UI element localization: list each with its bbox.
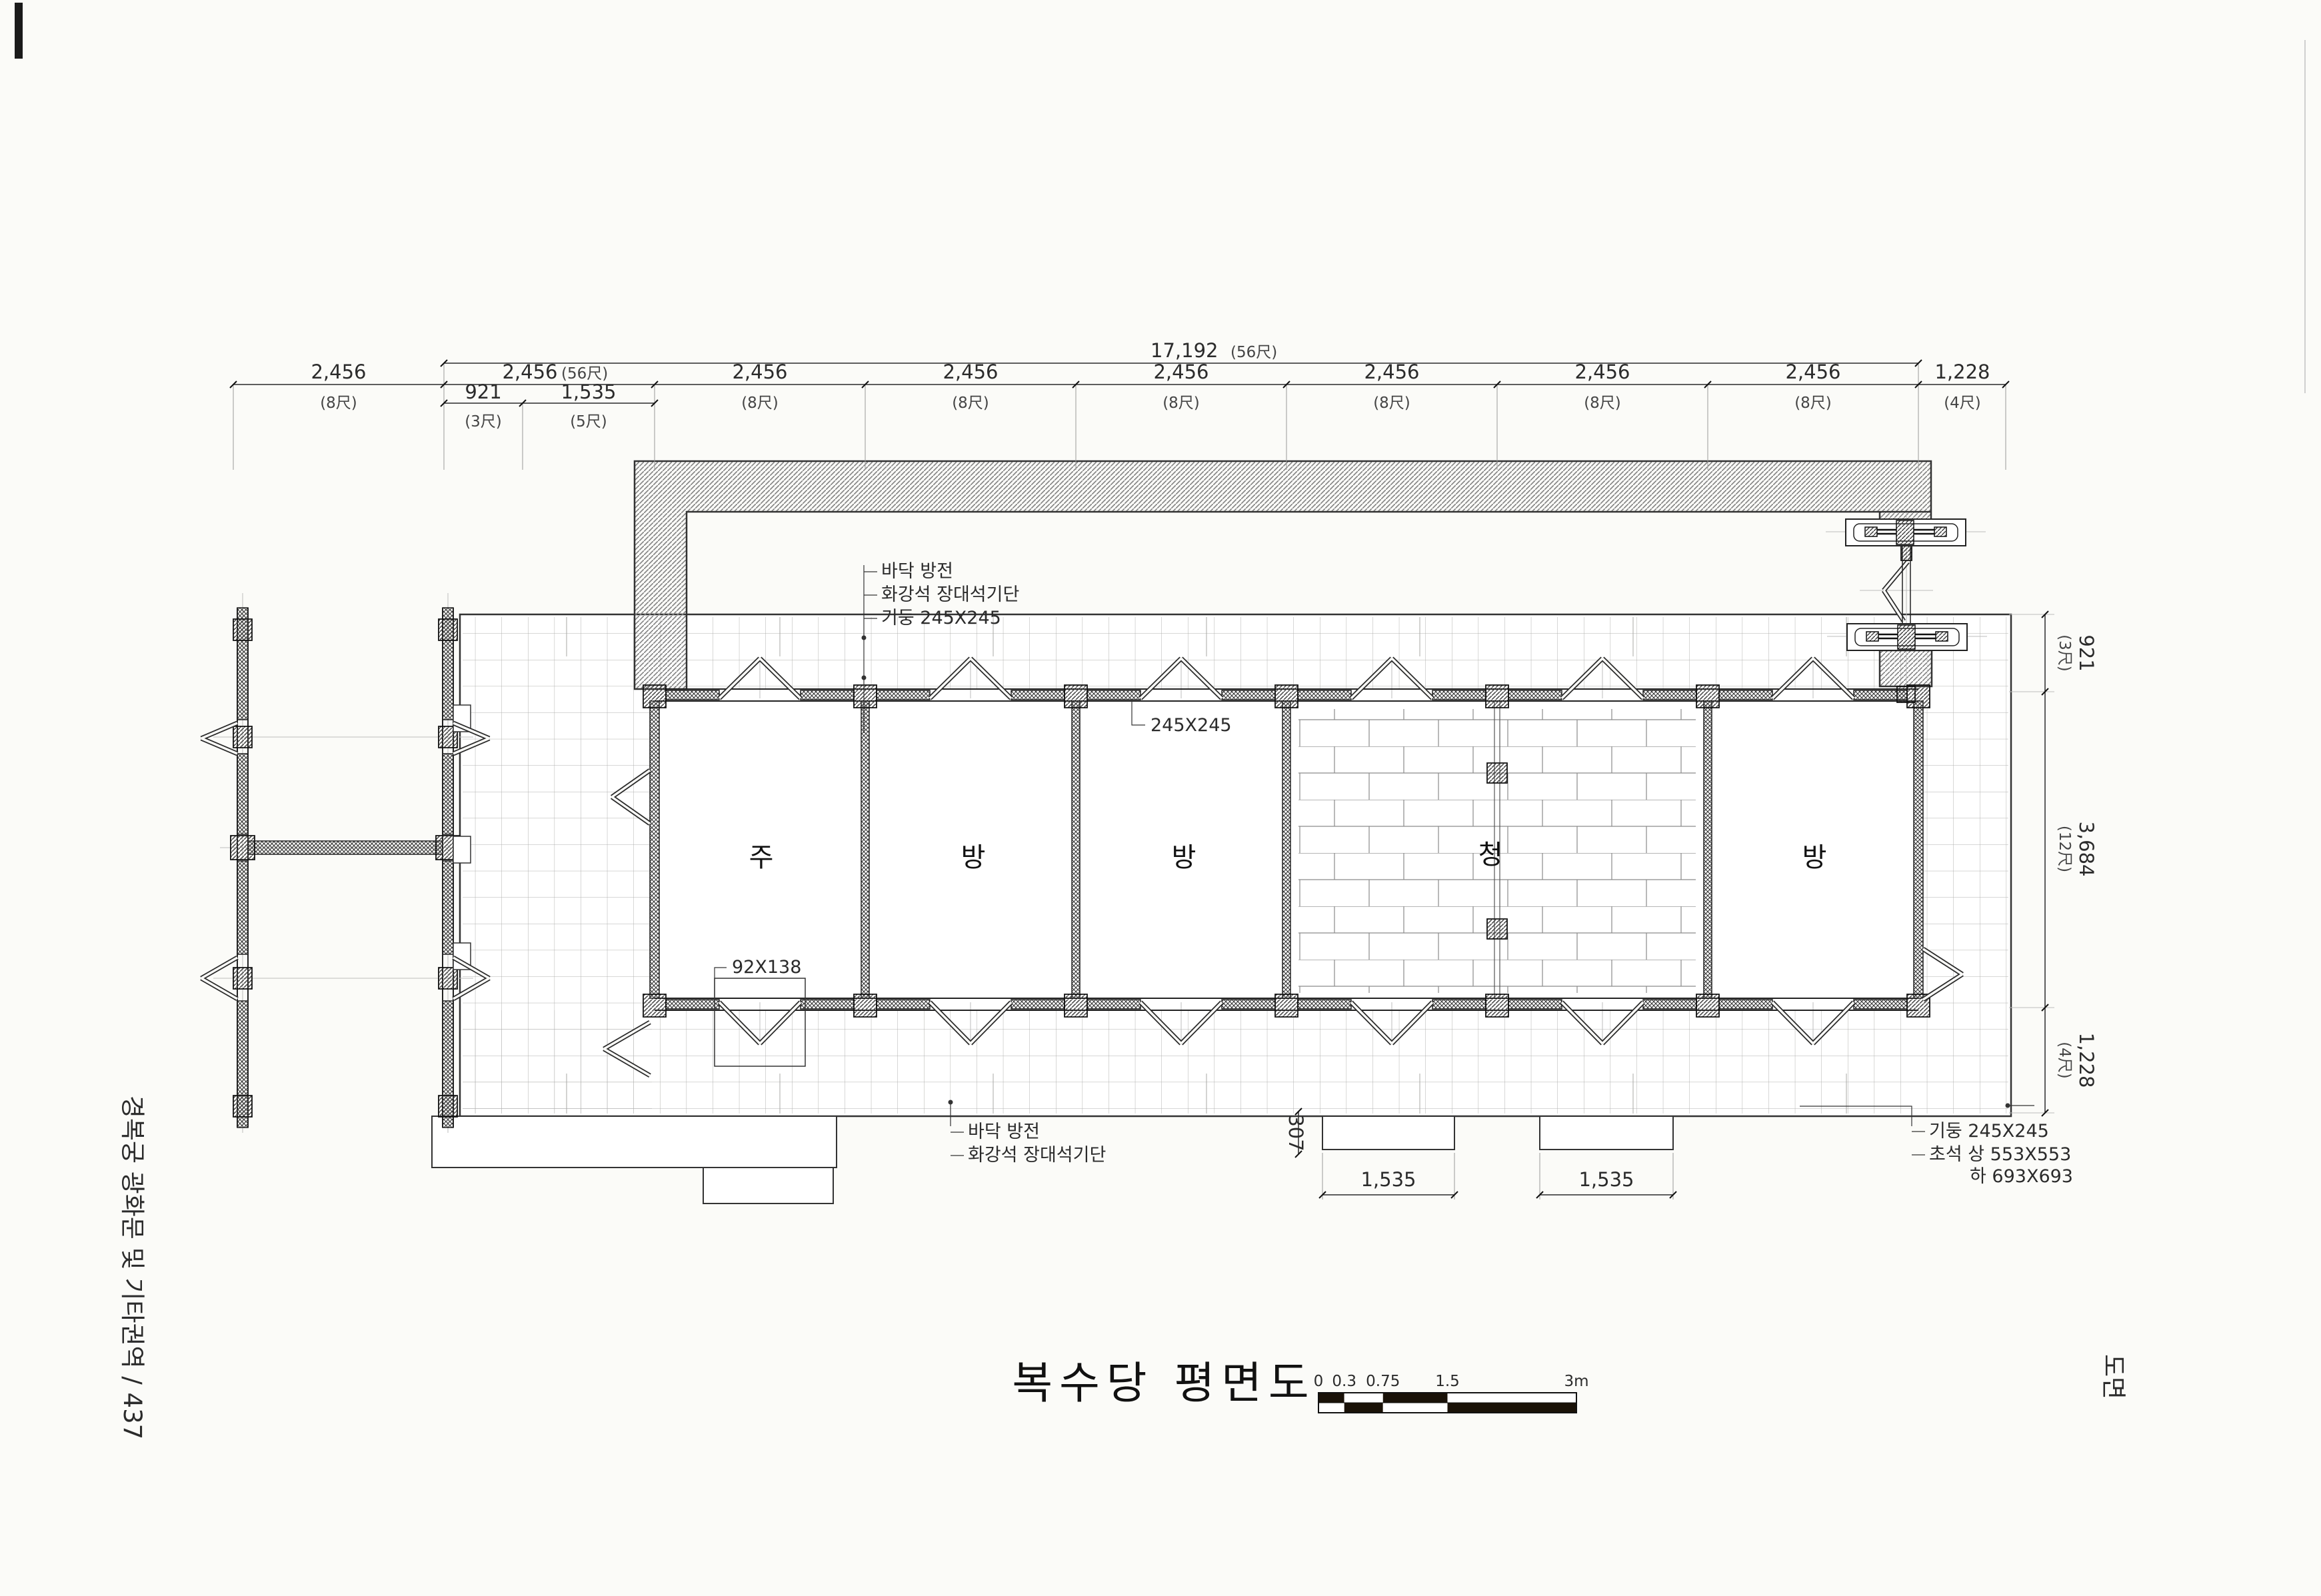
dim-bay-unit: (8尺)	[952, 395, 989, 412]
dim-sub-unit: (3尺)	[465, 413, 502, 430]
leader-dot	[862, 636, 867, 640]
annotation-top-line: 기둥 245X245	[881, 608, 1001, 628]
dim-bay-value: 2,456	[311, 361, 366, 383]
scale-label: 3m	[1564, 1373, 1588, 1390]
dim-bay-unit: (8尺)	[1162, 395, 1200, 412]
step-stone	[1322, 1116, 1454, 1150]
scale-label: 0.3	[1332, 1373, 1356, 1390]
dim-right-value: 3,684	[2075, 821, 2098, 876]
step-stone	[1540, 1116, 1673, 1150]
annotation-column-size: 245X245	[1151, 715, 1232, 736]
step-stone-left	[703, 1168, 833, 1203]
annotation-bottom-right-line: 하 693X693	[1970, 1166, 2073, 1187]
room-label: 방	[1802, 842, 1827, 873]
dim-sub-value: 1,535	[561, 381, 616, 403]
floor-plan-sheet: 17,192 (56尺) 2,456 (8尺) 2,456 (56尺) 2,45…	[0, 0, 2321, 1596]
room-label: 방	[961, 842, 986, 873]
scale-label: 0	[1314, 1373, 1324, 1390]
dim-right-unit: (12尺)	[2056, 826, 2073, 872]
dim-right-value: 921	[2075, 634, 2098, 671]
sheet-caption-right: 도면	[2099, 1354, 2128, 1399]
dim-bay-unit: (8尺)	[320, 395, 357, 412]
dim-bay-unit: (8尺)	[741, 395, 779, 412]
scan-artifact	[15, 3, 23, 59]
dim-bay-value: 2,456	[502, 361, 557, 383]
dim-bay-unit: (8尺)	[1584, 395, 1621, 412]
scale-label: 0.75	[1366, 1373, 1400, 1390]
dim-step-width: 1,535	[1360, 1168, 1416, 1191]
dim-bay-value: 2,456	[1364, 361, 1419, 383]
dim-bay-value: 2,456	[1785, 361, 1840, 383]
dim-bay-value: 2,456	[732, 361, 787, 383]
annotation-top-line: 바닥 방전	[881, 561, 953, 582]
door-frame	[453, 836, 471, 863]
room-label: 방	[1172, 842, 1196, 873]
scale-label: 1.5	[1435, 1373, 1460, 1390]
dim-bay-value: 2,456	[943, 361, 998, 383]
dim-bay-unit: (8尺)	[1373, 395, 1410, 412]
dim-right-unit: (4尺)	[2056, 1042, 2073, 1079]
annotation-bottom-right-line: 초석 상 553X553	[1929, 1144, 2071, 1165]
dim-sub-unit: (5尺)	[570, 413, 607, 430]
dim-right-unit: (3尺)	[2056, 634, 2073, 672]
platform-lower-apron	[432, 1116, 837, 1168]
dim-step-height: 307	[1284, 1114, 1307, 1151]
dim-top-total-unit: (56尺)	[1230, 344, 1277, 361]
leader-dot	[949, 1100, 953, 1105]
dim-sub-value: 921	[465, 381, 501, 403]
dim-step-width: 1,535	[1578, 1168, 1634, 1191]
room-label: 주	[749, 842, 774, 873]
dim-bay-unit: (8尺)	[1794, 395, 1832, 412]
dim-right-value: 1,228	[2075, 1032, 2098, 1088]
leader-dot	[2006, 1104, 2010, 1108]
dim-bay-unit: (4尺)	[1944, 395, 1981, 412]
annotation-bottom-line: 바닥 방전	[968, 1122, 1040, 1142]
dim-bay-value: 2,456	[1153, 361, 1208, 383]
sheet-caption-left: 경복궁 광화문 및 기타권역 / 437	[118, 1096, 147, 1439]
annotation-door-member: 92X138	[732, 957, 801, 978]
annotation-bottom-right-line: 기둥 245X245	[1929, 1121, 2049, 1142]
dim-top-total-value: 17,192	[1151, 339, 1218, 362]
dim-bay-value: 1,228	[1934, 361, 1990, 383]
room-label: 청	[1478, 840, 1503, 870]
drawing-title: 복수당 평면도	[1012, 1357, 1315, 1409]
annotation-top-line: 화강석 장대석기단	[881, 584, 1019, 605]
dim-bay-value: 2,456	[1574, 361, 1630, 383]
leader-dot	[862, 676, 867, 680]
annotation-bottom-line: 화강석 장대석기단	[968, 1145, 1106, 1166]
